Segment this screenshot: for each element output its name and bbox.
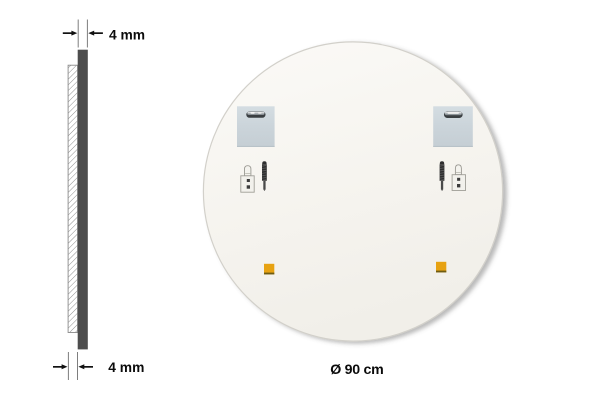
svg-text:Ø 90 cm: Ø 90 cm: [330, 362, 383, 378]
svg-text:4 mm: 4 mm: [109, 28, 145, 43]
svg-text:4 mm: 4 mm: [108, 360, 144, 375]
